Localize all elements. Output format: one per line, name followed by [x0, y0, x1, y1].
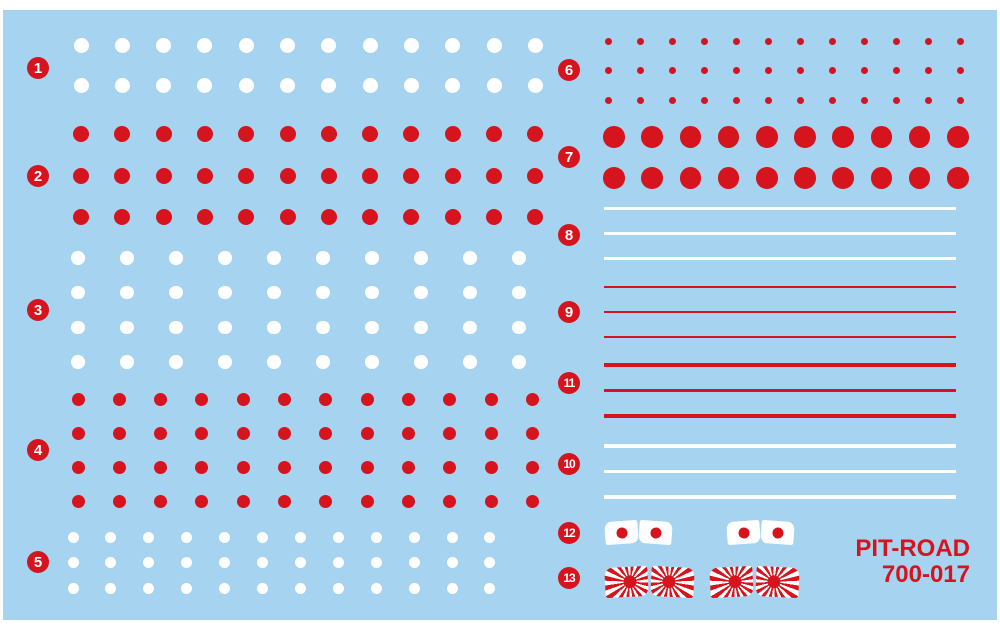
white-dot — [115, 38, 130, 53]
white-dot — [463, 251, 477, 265]
hinomaru-flag — [760, 520, 795, 545]
white-dot — [267, 286, 281, 300]
red-dot — [280, 209, 296, 225]
white-dot — [239, 38, 254, 53]
red-dot — [765, 97, 772, 104]
red-dot — [603, 167, 625, 189]
red-dot — [733, 97, 740, 104]
white-dot — [156, 38, 171, 53]
red-dot — [733, 67, 740, 74]
red-stripe — [604, 414, 956, 418]
red-dot — [829, 67, 836, 74]
red-dot — [361, 427, 374, 440]
white-dot — [74, 78, 89, 93]
white-dot — [143, 557, 154, 568]
red-stripe — [604, 389, 956, 393]
white-stripe — [604, 257, 956, 260]
white-dot — [169, 286, 183, 300]
white-dot — [120, 355, 134, 369]
red-dot — [402, 461, 415, 474]
red-dot — [445, 168, 461, 184]
white-dot — [68, 532, 79, 543]
white-dot — [414, 321, 428, 335]
red-dot — [72, 461, 85, 474]
red-dot — [871, 126, 893, 148]
red-dot — [797, 97, 804, 104]
white-dot — [371, 532, 382, 543]
red-dot — [957, 97, 964, 104]
red-dot — [641, 126, 663, 148]
red-dot — [797, 38, 804, 45]
red-dot — [197, 126, 213, 142]
white-dot — [512, 321, 526, 335]
hinomaru-flag — [604, 520, 639, 545]
white-dot — [333, 583, 344, 594]
white-stripe — [604, 470, 956, 474]
red-dot — [402, 393, 415, 406]
rising-sun-disc — [623, 575, 637, 589]
red-dot — [526, 461, 539, 474]
red-dot — [797, 67, 804, 74]
red-dot — [445, 126, 461, 142]
white-dot — [404, 78, 419, 93]
white-dot — [280, 38, 295, 53]
white-dot — [181, 583, 192, 594]
white-dot — [219, 583, 230, 594]
white-dot — [267, 251, 281, 265]
white-dot — [257, 557, 268, 568]
white-stripe — [604, 207, 956, 210]
red-stripe — [604, 311, 956, 314]
white-dot — [363, 38, 378, 53]
white-dot — [68, 557, 79, 568]
red-dot — [403, 168, 419, 184]
red-dot — [485, 461, 498, 474]
white-dot — [257, 532, 268, 543]
white-dot — [371, 557, 382, 568]
white-dot — [445, 38, 460, 53]
red-dot — [861, 67, 868, 74]
white-dot — [218, 286, 232, 300]
white-dot — [316, 355, 330, 369]
red-dot — [669, 38, 676, 45]
red-dot — [278, 461, 291, 474]
red-dot — [73, 209, 89, 225]
red-dot — [278, 427, 291, 440]
hinomaru-sun — [772, 527, 784, 539]
white-dot — [333, 557, 344, 568]
white-dot — [404, 38, 419, 53]
red-dot — [485, 427, 498, 440]
white-dot — [181, 557, 192, 568]
white-dot — [218, 251, 232, 265]
red-dot — [278, 495, 291, 508]
white-dot — [528, 38, 543, 53]
red-dot — [637, 67, 644, 74]
red-dot — [319, 461, 332, 474]
red-dot — [195, 393, 208, 406]
red-dot — [832, 167, 854, 189]
white-dot — [239, 78, 254, 93]
red-dot — [871, 167, 893, 189]
red-dot — [72, 427, 85, 440]
red-dot — [756, 126, 778, 148]
white-dot — [487, 78, 502, 93]
red-dot — [756, 167, 778, 189]
red-dot — [237, 495, 250, 508]
red-dot — [443, 427, 456, 440]
white-dot — [528, 78, 543, 93]
red-dot — [361, 393, 374, 406]
red-stripe — [604, 336, 956, 339]
red-dot — [114, 168, 130, 184]
white-dot — [120, 321, 134, 335]
item-number-badge: 5 — [27, 551, 49, 573]
rising-sun-disc — [728, 575, 742, 589]
red-dot — [861, 38, 868, 45]
brand-name: PIT-ROAD — [855, 536, 970, 562]
red-dot — [238, 126, 254, 142]
item-number-badge: 9 — [558, 301, 580, 323]
brand-block: PIT-ROAD 700-017 — [855, 536, 970, 588]
rising-sun-flag — [709, 566, 754, 598]
red-dot — [197, 209, 213, 225]
white-dot — [105, 583, 116, 594]
white-dot — [365, 286, 379, 300]
item-number-badge: 11 — [558, 372, 580, 394]
red-dot — [113, 461, 126, 474]
red-dot — [443, 393, 456, 406]
white-dot — [409, 532, 420, 543]
white-dot — [484, 583, 495, 594]
white-dot — [371, 583, 382, 594]
red-dot — [113, 427, 126, 440]
red-dot — [637, 38, 644, 45]
white-dot — [197, 78, 212, 93]
white-dot — [120, 286, 134, 300]
item-number-badge: 12 — [558, 522, 580, 544]
red-dot — [197, 168, 213, 184]
white-dot — [321, 38, 336, 53]
white-dot — [365, 355, 379, 369]
white-dot — [316, 321, 330, 335]
red-stripe — [604, 363, 956, 367]
red-dot — [893, 97, 900, 104]
white-dot — [414, 355, 428, 369]
white-dot — [143, 532, 154, 543]
red-dot — [909, 167, 931, 189]
red-dot — [238, 168, 254, 184]
red-dot — [156, 168, 172, 184]
red-dot — [114, 126, 130, 142]
red-dot — [794, 167, 816, 189]
white-dot — [181, 532, 192, 543]
white-dot — [105, 557, 116, 568]
red-dot — [72, 495, 85, 508]
white-dot — [484, 557, 495, 568]
red-dot — [321, 168, 337, 184]
red-dot — [718, 167, 740, 189]
red-dot — [445, 209, 461, 225]
white-dot — [169, 355, 183, 369]
red-dot — [321, 126, 337, 142]
white-dot — [333, 532, 344, 543]
white-dot — [447, 583, 458, 594]
item-number-badge: 13 — [558, 567, 580, 589]
white-dot — [115, 78, 130, 93]
red-dot — [362, 209, 378, 225]
red-dot — [443, 461, 456, 474]
white-stripe — [604, 444, 956, 448]
hinomaru-sun — [650, 527, 662, 539]
white-dot — [105, 532, 116, 543]
red-dot — [527, 209, 543, 225]
red-dot — [637, 97, 644, 104]
red-dot — [925, 97, 932, 104]
white-dot — [484, 532, 495, 543]
red-stripe — [604, 286, 956, 289]
red-dot — [605, 38, 612, 45]
item-number-badge: 6 — [558, 59, 580, 81]
white-stripe — [604, 232, 956, 235]
red-dot — [925, 38, 932, 45]
white-dot — [295, 583, 306, 594]
red-dot — [605, 67, 612, 74]
white-dot — [363, 78, 378, 93]
red-dot — [403, 209, 419, 225]
white-dot — [487, 38, 502, 53]
white-dot — [71, 355, 85, 369]
red-dot — [319, 495, 332, 508]
red-dot — [319, 427, 332, 440]
red-dot — [72, 393, 85, 406]
white-dot — [463, 355, 477, 369]
red-dot — [237, 427, 250, 440]
rising-sun-flag — [755, 566, 800, 598]
red-dot — [114, 209, 130, 225]
red-dot — [680, 126, 702, 148]
red-dot — [829, 97, 836, 104]
white-dot — [512, 251, 526, 265]
red-dot — [195, 461, 208, 474]
item-number-badge: 4 — [27, 439, 49, 461]
red-dot — [280, 126, 296, 142]
red-dot — [527, 126, 543, 142]
red-dot — [361, 461, 374, 474]
red-dot — [278, 393, 291, 406]
white-dot — [267, 355, 281, 369]
white-dot — [512, 286, 526, 300]
hinomaru-sun — [738, 527, 750, 539]
red-dot — [280, 168, 296, 184]
red-dot — [319, 393, 332, 406]
red-dot — [947, 167, 969, 189]
red-dot — [701, 97, 708, 104]
white-dot — [74, 38, 89, 53]
red-dot — [957, 67, 964, 74]
hinomaru-sun — [616, 527, 628, 539]
white-dot — [169, 321, 183, 335]
red-dot — [526, 495, 539, 508]
white-dot — [316, 286, 330, 300]
red-dot — [73, 168, 89, 184]
red-dot — [443, 495, 456, 508]
red-dot — [154, 427, 167, 440]
item-number-badge: 3 — [27, 299, 49, 321]
red-dot — [909, 126, 931, 148]
white-dot — [409, 583, 420, 594]
white-dot — [447, 557, 458, 568]
red-dot — [402, 495, 415, 508]
red-dot — [486, 126, 502, 142]
red-dot — [925, 67, 932, 74]
red-dot — [680, 167, 702, 189]
white-dot — [447, 532, 458, 543]
brand-code: 700-017 — [855, 562, 970, 588]
white-dot — [219, 557, 230, 568]
item-number-badge: 7 — [558, 146, 580, 168]
decal-sheet-page: 12345678911101213 PIT-ROAD 700-017 — [0, 0, 1000, 626]
red-dot — [403, 126, 419, 142]
item-number-badge: 10 — [558, 453, 580, 475]
white-dot — [365, 321, 379, 335]
white-dot — [321, 78, 336, 93]
red-dot — [195, 427, 208, 440]
red-dot — [154, 393, 167, 406]
red-dot — [718, 126, 740, 148]
red-dot — [701, 67, 708, 74]
red-dot — [156, 209, 172, 225]
item-number-badge: 1 — [27, 57, 49, 79]
white-dot — [71, 286, 85, 300]
white-stripe — [604, 495, 956, 499]
white-dot — [365, 251, 379, 265]
white-dot — [512, 355, 526, 369]
white-dot — [71, 321, 85, 335]
red-dot — [486, 168, 502, 184]
item-number-badge: 2 — [27, 165, 49, 187]
red-dot — [669, 67, 676, 74]
red-dot — [195, 495, 208, 508]
red-dot — [527, 168, 543, 184]
white-dot — [218, 321, 232, 335]
white-dot — [295, 557, 306, 568]
red-dot — [605, 97, 612, 104]
white-dot — [295, 532, 306, 543]
rising-sun-disc — [767, 575, 781, 589]
red-dot — [238, 209, 254, 225]
white-dot — [316, 251, 330, 265]
white-dot — [267, 321, 281, 335]
white-dot — [445, 78, 460, 93]
white-dot — [219, 532, 230, 543]
red-dot — [765, 67, 772, 74]
rising-sun-flag — [650, 566, 695, 598]
red-dot — [402, 427, 415, 440]
white-dot — [414, 286, 428, 300]
red-dot — [893, 67, 900, 74]
white-dot — [120, 251, 134, 265]
white-dot — [169, 251, 183, 265]
white-dot — [197, 38, 212, 53]
red-dot — [154, 461, 167, 474]
red-dot — [362, 168, 378, 184]
red-dot — [947, 126, 969, 148]
white-dot — [463, 286, 477, 300]
red-dot — [829, 38, 836, 45]
hinomaru-flag — [726, 520, 761, 545]
red-dot — [237, 393, 250, 406]
red-dot — [893, 38, 900, 45]
white-dot — [409, 557, 420, 568]
red-dot — [765, 38, 772, 45]
red-dot — [485, 495, 498, 508]
red-dot — [486, 209, 502, 225]
red-dot — [73, 126, 89, 142]
red-dot — [321, 209, 337, 225]
hinomaru-flag — [638, 520, 673, 545]
white-dot — [414, 251, 428, 265]
red-dot — [113, 393, 126, 406]
decal-content-layer: 12345678911101213 — [0, 0, 1000, 626]
white-dot — [463, 321, 477, 335]
red-dot — [362, 126, 378, 142]
white-dot — [68, 583, 79, 594]
white-dot — [156, 78, 171, 93]
rising-sun-flag — [604, 566, 649, 598]
red-dot — [669, 97, 676, 104]
red-dot — [526, 393, 539, 406]
rising-sun-disc — [662, 575, 676, 589]
red-dot — [237, 461, 250, 474]
red-dot — [485, 393, 498, 406]
red-dot — [603, 126, 625, 148]
white-dot — [257, 583, 268, 594]
white-dot — [143, 583, 154, 594]
red-dot — [113, 495, 126, 508]
item-number-badge: 8 — [558, 224, 580, 246]
red-dot — [361, 495, 374, 508]
white-dot — [218, 355, 232, 369]
red-dot — [733, 38, 740, 45]
red-dot — [526, 427, 539, 440]
red-dot — [156, 126, 172, 142]
red-dot — [794, 126, 816, 148]
red-dot — [154, 495, 167, 508]
red-dot — [861, 97, 868, 104]
red-dot — [832, 126, 854, 148]
red-dot — [641, 167, 663, 189]
red-dot — [957, 38, 964, 45]
white-dot — [280, 78, 295, 93]
red-dot — [701, 38, 708, 45]
white-dot — [71, 251, 85, 265]
